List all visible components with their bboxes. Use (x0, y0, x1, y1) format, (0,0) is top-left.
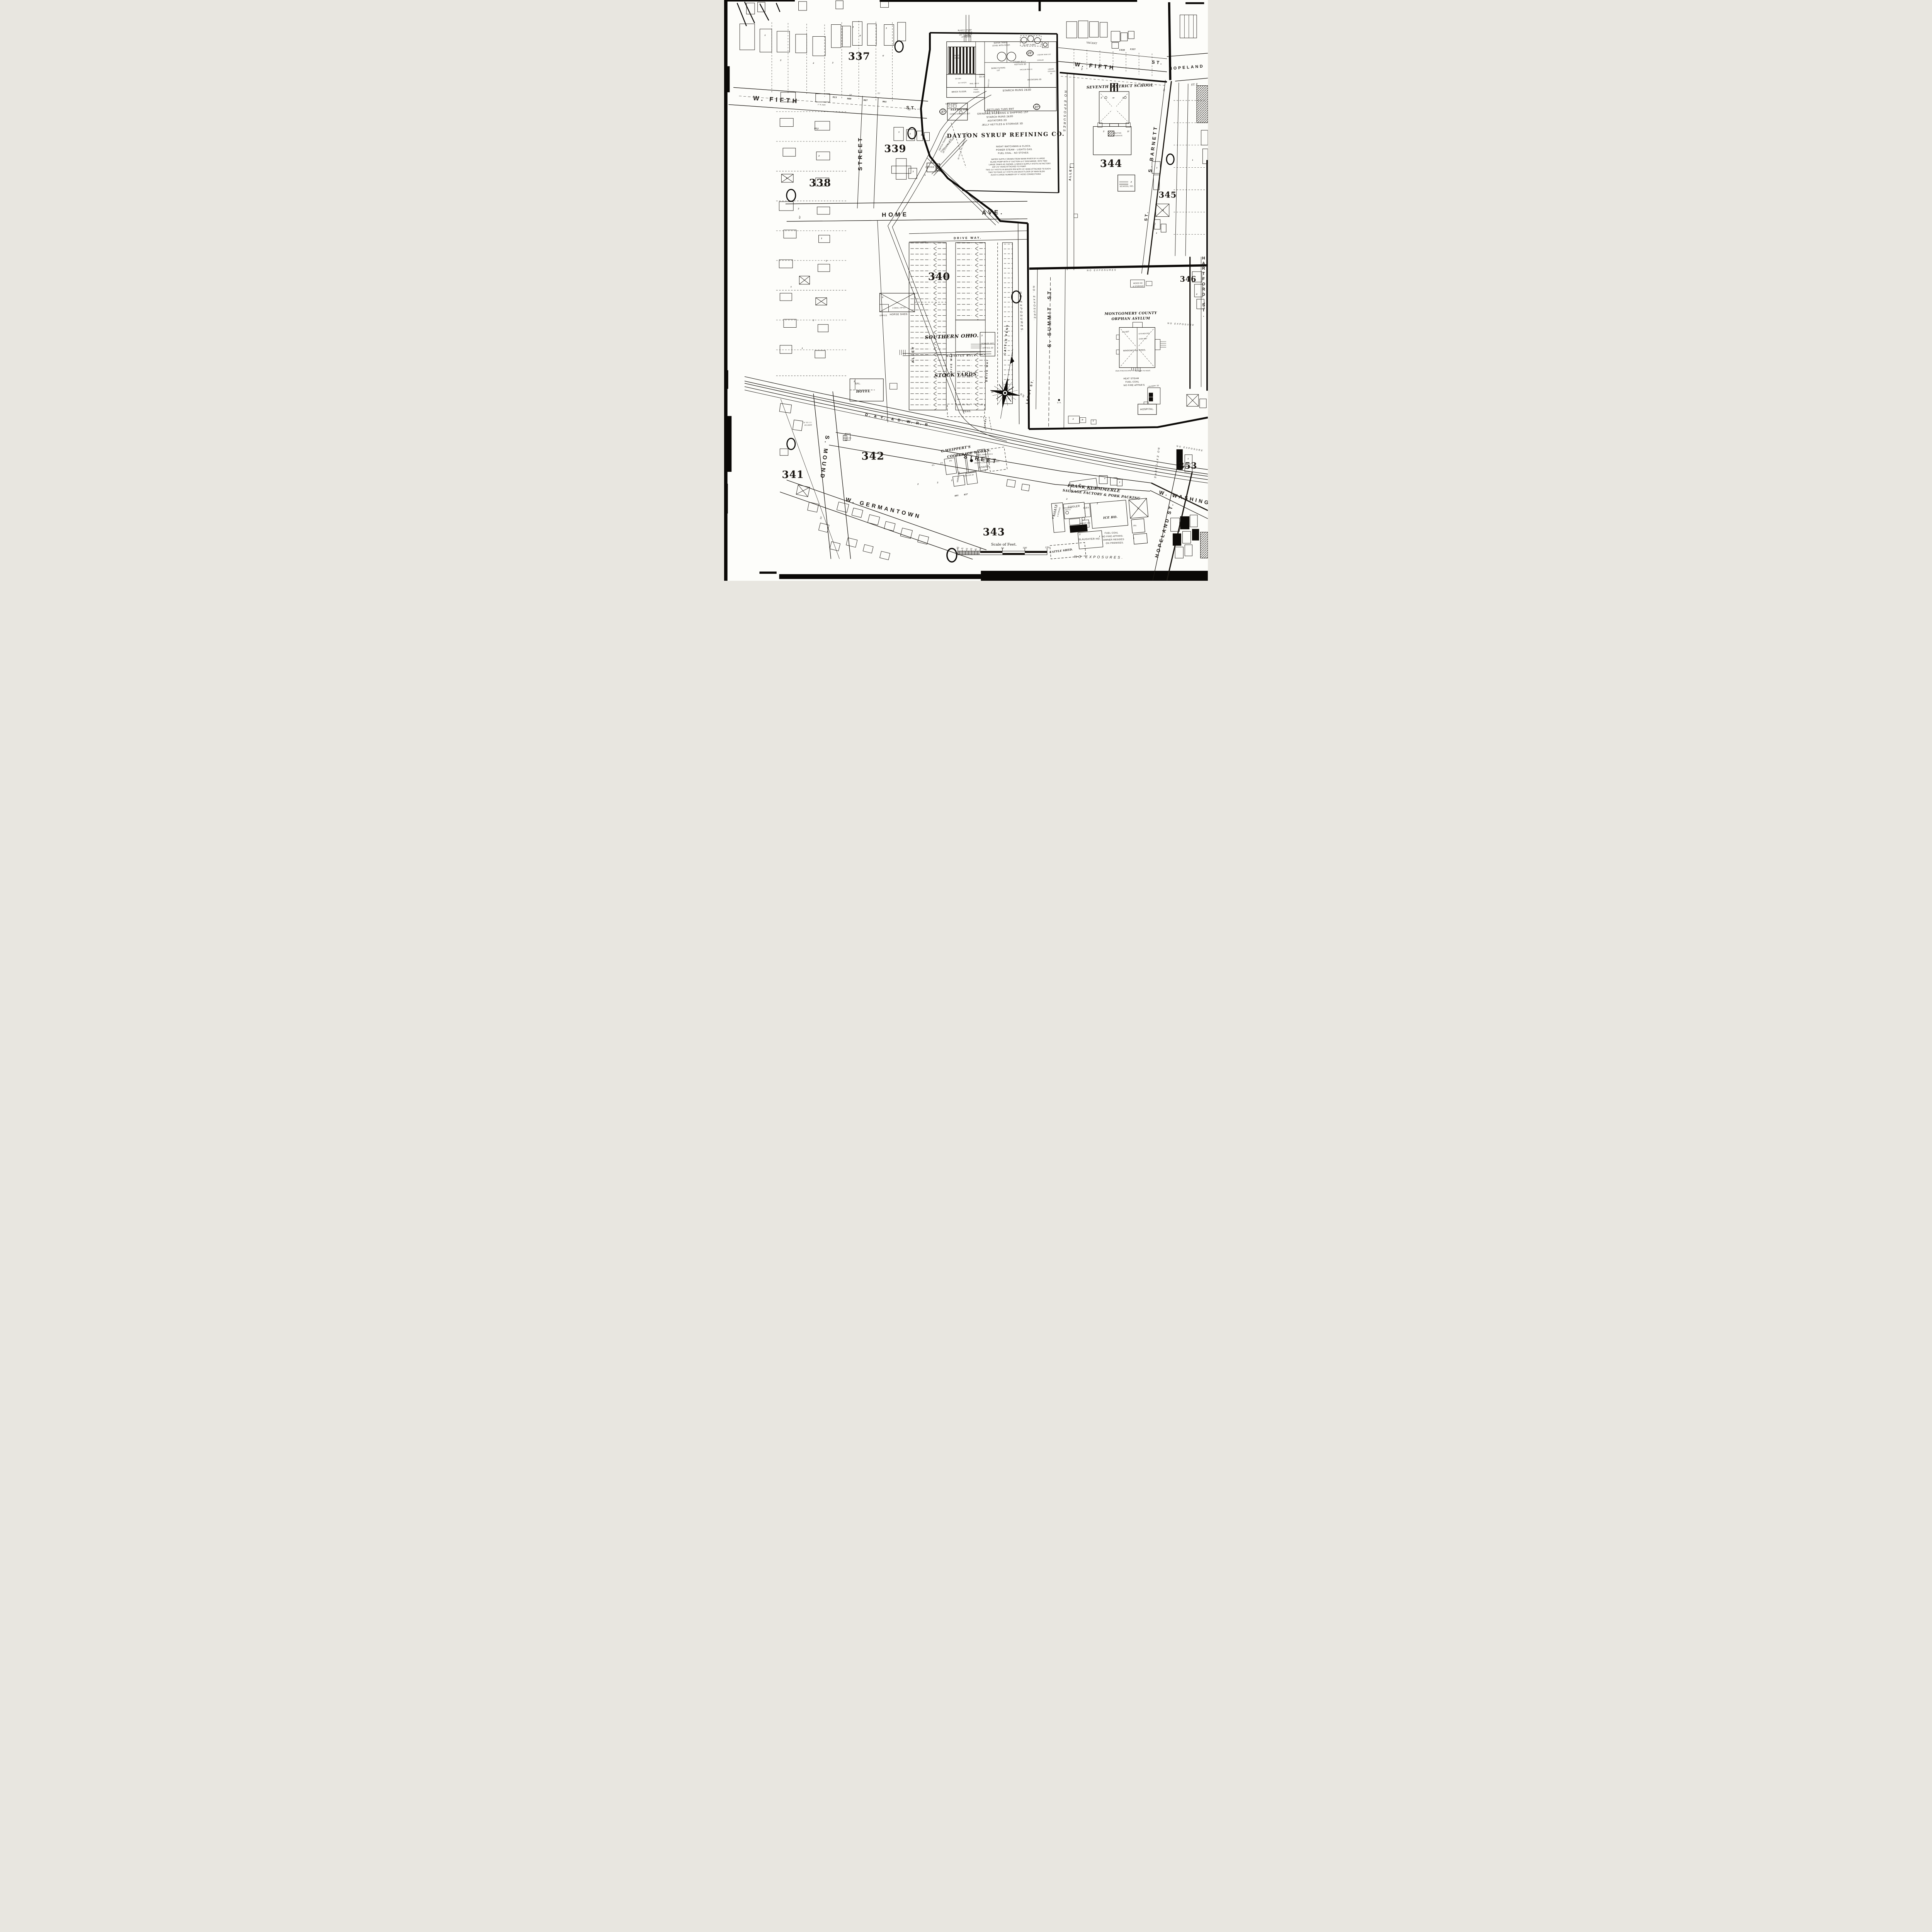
note-windows: WINDOWS ALL SIDES. (1123, 349, 1146, 352)
no-exposure-label: NO EXPOSURES (1063, 90, 1067, 133)
note-settling: JELLY KETTLES & STORAGE 3D (982, 123, 1023, 127)
scale-tick: 20 (970, 549, 973, 550)
building-floor-count: D. (1079, 484, 1082, 486)
building-floor-count: 2 (818, 155, 820, 157)
note-heating-furnace: FURNACE (1115, 135, 1122, 136)
note-pen: PEN. (967, 375, 974, 378)
building-floor-count: 3D (1112, 97, 1114, 99)
block-number-345: 345 (1159, 191, 1177, 199)
building-floor-count: 2 (1189, 464, 1190, 466)
note-jelly-kettles: KETTLES 3D (1014, 64, 1026, 66)
building-floor-count: 1 (910, 133, 911, 135)
street-label-w-washington: W. WASHINGTON (1159, 490, 1208, 509)
building-floor-count: 1 (924, 175, 925, 177)
street-label-home: HOME (882, 212, 909, 218)
note-corn-bin: BIN 2D (979, 76, 985, 78)
block-number-338: 338 (809, 178, 831, 188)
scanned-map-page: W. FIFTHST.W. FIFTHST.HOPELANDSTREETHOME… (724, 0, 1208, 581)
street-label-hopeland-st: HOPELAND ST. (1154, 502, 1175, 558)
building-floor-count: 2 (1066, 498, 1067, 500)
note-liquor-coolers: 3D (1050, 73, 1052, 75)
no-exposure-label: NO EXPOSURE (1176, 445, 1204, 452)
no-exposure-label: NO EXPOSURE (1167, 322, 1195, 327)
note-asylum-heat: HEAT STEAM (1123, 378, 1139, 380)
note-elevator: ELEV. (1083, 507, 1090, 509)
note-kuemmerle-fuel: FUEL COAL (1105, 532, 1119, 534)
house-number: 912 (814, 128, 818, 130)
dimension-label: 40' (1163, 88, 1166, 92)
dimension-label: 135' (922, 241, 927, 244)
block-number-343: 343 (983, 527, 1005, 537)
note-hydrant: D.H. (1057, 402, 1061, 404)
note-sausage-factory: & STORAGE (1057, 507, 1061, 517)
building-floor-count: S' (859, 36, 861, 37)
building-floor-count: 2 (937, 482, 939, 484)
building-floor-count: 2 (1131, 181, 1132, 183)
scale-tick: 150 (1045, 547, 1049, 549)
building-floor-count: 2 (1137, 508, 1138, 510)
building-floor-count: 1 (886, 28, 887, 30)
scale-tick: 50 (1001, 548, 1004, 550)
house-number: 841 (955, 495, 959, 497)
building-floor-count: 1 (1099, 536, 1100, 538)
block-number-344: 344 (1100, 159, 1122, 169)
note-staves-height: 6' (985, 469, 987, 472)
scale-tick: 30 (966, 549, 968, 550)
note-laundry: LAUNDRY 2D (1148, 385, 1159, 388)
block-number-339: 339 (884, 144, 906, 154)
note-mills: MILLS 1ST (988, 79, 990, 87)
elevated-walk-label: ELEVATED WALK (947, 355, 976, 357)
building-floor-count: 1 (802, 348, 803, 350)
script-label: ST. E (1191, 83, 1198, 87)
poi-orphan-asylum: MONTGOMERY COUNTY (1105, 311, 1157, 316)
scale-tick: 50 (956, 548, 959, 549)
dimension-label: 16' (908, 109, 911, 111)
note-asylum-fuel: FUEL COAL (1126, 381, 1139, 383)
note-scales-office: OFFICE 2D (983, 347, 993, 349)
note-office: OFFICE (925, 166, 935, 168)
building-floor-count: 2 (1163, 210, 1164, 212)
building-floor-count: 2 (813, 63, 814, 65)
building-floor-count: 2 (780, 60, 781, 62)
dimension-label: 51' (878, 93, 881, 95)
note-fire-escape: IRON FIRE ESCAPE TO 3D (1116, 370, 1137, 372)
street-label-street-vertical: STREET (857, 136, 863, 171)
note-elevator-bldg: ELEVATOR. (951, 108, 969, 111)
note-blake-pump: ATTACHED (961, 37, 971, 39)
building-floor-count: 2/ (1127, 131, 1129, 133)
dimension-label: 66' (1023, 394, 1026, 398)
compass-letter-n: N (1007, 379, 1009, 381)
dimension-label: 33' (1154, 222, 1157, 226)
sheet-ref-37: 37 (939, 109, 946, 114)
note-settling: SETTLING TUBS BMT (987, 108, 1015, 112)
note-wood-house: WOOD HO (1133, 283, 1143, 285)
compass-letter-e: E (1020, 393, 1022, 396)
building-floor-count: 2 (1073, 419, 1074, 420)
street-label-s-barnett: S. BARNETT (1148, 125, 1158, 173)
building-floor-count: 1 (1104, 478, 1105, 480)
building-floor-count: 2 (1079, 534, 1080, 536)
building-floor-count: 1½ (932, 465, 935, 467)
building-floor-count: 1 (1187, 459, 1189, 460)
dimension-label: 35' (1142, 265, 1146, 268)
note-flag-house: FLAG HO. (844, 437, 852, 439)
water-pipe-label: 3" W. PIPE (818, 104, 826, 106)
building-floor-count: 1 (1192, 160, 1193, 162)
building-floor-count: 2 (813, 320, 814, 322)
street-label-hopeland: HOPELAND (1169, 65, 1204, 71)
compass-letter-w: W (991, 391, 994, 394)
street-label-s-barnett-st: ST. (1144, 210, 1150, 221)
block-number-341: 341 (782, 470, 804, 480)
note-kitchen: KITCHEN BST (1139, 333, 1150, 335)
block-number-346: 346 (1180, 276, 1197, 283)
note-pen: PEN (968, 334, 973, 337)
scale-bar-title: Scale of Feet. (991, 543, 1017, 547)
note-settling: AGITATORS 2D (988, 119, 1007, 122)
poi-orphan-asylum: ORPHAN ASYLUM (1112, 317, 1150, 321)
building-floor-count: 2 (1196, 294, 1197, 296)
note-bone-filters: 1ST (997, 70, 1000, 72)
building-floor-count: 1 (764, 35, 765, 37)
cattle-pens-label: CATTLE PENS (1003, 324, 1009, 355)
note-feed-pumps: PUMPS (973, 91, 979, 93)
poi-seventh-district-school: SEVENTH DISTRICT SCHOOL (1087, 84, 1154, 90)
note-watchman: NIGHT WATCHMAN & CLOCK. (996, 145, 1031, 148)
building-floor-count: 2 (1101, 97, 1102, 99)
note-heating-furnace: HEATING (1114, 133, 1122, 134)
note-kuemmerle-fuel: NO FIRE APPARS: (1102, 535, 1124, 538)
note-openings: 8 SMALL OP'GS (893, 307, 906, 310)
scale-tick: 40 (961, 548, 964, 550)
building-floor-count: 1 (921, 134, 922, 136)
house-number: 907 (863, 100, 867, 102)
building-floor-count: 1 (1156, 233, 1157, 235)
no-exposure-label: NO EXPOSURE. (1153, 447, 1160, 481)
block-number-337: 337 (848, 51, 870, 61)
house-number: 1339 (1119, 49, 1125, 52)
building-floor-count: D (1082, 420, 1083, 421)
building-floor-count: 2 (951, 480, 952, 482)
note-feed-pumps: FEED (974, 89, 978, 91)
note-wood-house: & STORAGE (1133, 286, 1144, 288)
note-kuemmerle-fuel: OWNER RESIDES (1103, 538, 1124, 541)
building-floor-count: 1 (786, 178, 787, 180)
block-number-340: 340 (928, 272, 950, 282)
dimension-label: 30' TO 1 S. (803, 422, 812, 424)
building-floor-count: 1 (821, 238, 822, 240)
building-floor-count: 1½ (940, 463, 943, 464)
note-scales: SCALES (936, 163, 938, 171)
note-brick-floor: BRICK (954, 55, 960, 57)
note-agitators: AGITATORS 2D (1027, 79, 1041, 81)
note-brick-floor: FLOOR (954, 58, 961, 60)
note-scales-office: SCALES 1ST (981, 343, 994, 345)
building-floor-count: 1 (1093, 421, 1094, 422)
street-label-w-germantown: W. GERMANTOWN (845, 497, 922, 520)
no-exposure-label: NO EXPOSURES (1087, 269, 1117, 272)
note-staves: STAVES. (979, 465, 990, 469)
note-engine-equip: ENG. EQUIP. (946, 103, 958, 105)
note-liquor-coolers: COOLERS (1048, 71, 1056, 73)
note-water-supply: ALSO A LARGE NUMBER OF ¾" HOSE CONNECTIO… (991, 173, 1041, 176)
note-ice-house: ICE HO. (1103, 515, 1118, 519)
building-floor-count: 1 (898, 131, 900, 133)
note-horse-shed: HORSE SHED. (890, 313, 908, 316)
note-liquor-tank: LIQUOR TANK 1ST (1037, 54, 1051, 56)
building-floor-count: 2 (981, 335, 983, 337)
street-label-alley-west: ALLEY (912, 345, 915, 363)
note-office-stockyard: OFFICE (879, 315, 887, 317)
note-settling: GRINDING, FILTERING & SHIPPING 1ST (977, 111, 1029, 116)
note-ladder: LADDER TO ROOF. (1136, 370, 1151, 372)
note-watchman: POWER STEAM - LIGHTS GAS. (996, 148, 1033, 151)
building-floor-count: 2 (882, 297, 883, 299)
house-number: 915 (832, 97, 837, 99)
note-settling: STARCH RUNS 2&3D (986, 116, 1013, 119)
sheet-ref-37: 37 (1033, 104, 1040, 109)
no-exposure-label: NO. EXPOSURE. (1032, 286, 1036, 321)
street-label-alley-school: ALLEY (1069, 165, 1073, 181)
dimension-label: 50' (849, 94, 852, 96)
house-number: 909 (847, 98, 851, 100)
building-floor-count: 2 (1097, 503, 1098, 505)
note-water-supply: 100' 2½" HOSE ATTACHED TO PUMP. (992, 166, 1026, 168)
note-vacuum-pan: VACUUM PAN ST. (1020, 69, 1032, 71)
building-floor-count: 1 (1156, 167, 1157, 169)
house-number: 901 (882, 101, 886, 104)
note-chimney: CH 100' (955, 78, 961, 80)
note-oven: OVEN BST (1139, 338, 1147, 340)
scale-tick: 10 (975, 549, 977, 551)
note-hospital: HOSPITAL. (1140, 408, 1154, 412)
note-slop-tubs: SLOP TUBS. (1023, 44, 1036, 47)
building-floor-count: 1 (913, 171, 914, 173)
note-asylum-apparatus: NO FIRE APPAR'S (1124, 384, 1145, 387)
street-label-w-fifth: W. FIFTH (753, 95, 800, 105)
street-label-hartford: HARTFORD ST. (1201, 256, 1206, 319)
note-pens: PENS. (963, 410, 971, 413)
building-floor-count: 2 (917, 483, 918, 485)
driveway-label-east: DRIVE WAY (985, 359, 989, 382)
building-floor-count: 1 (852, 27, 854, 29)
building-floor-count: 1 (1119, 482, 1120, 484)
street-label-ave: AVE. (982, 210, 1005, 216)
runway-label: RUNWAY (984, 416, 987, 429)
note-saloon: SAL. (855, 383, 861, 385)
building-floor-count: 1½ (949, 460, 952, 462)
dimension-label: 60' (799, 216, 802, 219)
note-syrup-cooler: COOLER (1037, 60, 1044, 61)
water-pipe-label: 6" W. PIPE (1050, 292, 1052, 300)
dimension-label: FR SHED (804, 424, 812, 426)
building-floor-count: 2 (1122, 97, 1124, 99)
house-number: 1337 (1130, 49, 1136, 51)
no-exposure-label: NO EXPOSURES. (1019, 291, 1023, 333)
note-engine: ENG. 100 H. (970, 83, 980, 85)
dimension-label: 60' (1081, 67, 1084, 71)
railroad-label: D. & V., & D. W. R. R. (865, 413, 932, 428)
building-floor-count: 1 (1133, 538, 1134, 540)
street-label-s-mound: S. MOUND (819, 435, 830, 480)
map-labels-layer: W. FIFTHST.W. FIFTHST.HOPELANDSTREETHOME… (724, 0, 1208, 581)
building-floor-count: 2 (798, 208, 799, 210)
note-watchman: FUEL COAL - NO STOVES. (998, 152, 1029, 155)
street-label-st-east: ST. (1152, 60, 1164, 65)
note-school-house: SCHOOL HO. (1120, 185, 1134, 188)
building-floor-count: S' (883, 56, 884, 57)
no-exposure-label: NO EXPOSURES. (1074, 555, 1124, 560)
note-starch-runs: STARCH RUNS 2&3D (1003, 88, 1032, 92)
building-floor-count: 2 (1103, 131, 1104, 133)
building-floor-count: 2 (826, 260, 827, 262)
poi-hotel: HOTEL (856, 390, 870, 394)
building-floor-count: 1 (1204, 303, 1205, 304)
note-kuemmerle-fuel: ON PREMISES. (1106, 542, 1124, 544)
note-liquor-coolers: LIQUOR (1048, 68, 1054, 70)
note-machinery: HAND W'K 2D (963, 474, 974, 477)
building-floor-count: 2 (832, 62, 833, 64)
note-asylum-floors: 3 & BST (1122, 331, 1129, 333)
scale-tick: 100 (1023, 547, 1027, 549)
note-brick-floor: BRICK FLOOR. (952, 91, 967, 94)
note-vacant: VACANT (1086, 41, 1097, 45)
dimension-25: 25' (1026, 51, 1034, 56)
map-stage: W. FIFTHST.W. FIFTHST.HOPELANDSTREETHOME… (724, 0, 1208, 581)
note-slaughter-house: SLAUGHTER HO. (1078, 538, 1100, 541)
note-hydrants: 1½" HYD'S (958, 82, 966, 84)
driveway-label-top: DRIVE WAY. (954, 236, 982, 240)
note-corn-sheller: CORN SHELLER 1ST (950, 113, 970, 116)
note-smoke-house: SMOKE HO. (1079, 523, 1090, 526)
note-rendering-kettle: KETTLE (1065, 509, 1071, 511)
building-floor-count: 1½ (1133, 525, 1136, 527)
block-number-342: 342 (861, 451, 884, 461)
note-water-tanks: LEVEL WITH ROOF. (992, 44, 1010, 47)
building-floor-count: 2 (854, 381, 855, 383)
scale-tick: 0 (980, 548, 981, 550)
note-cattle-shed: CATTLE SHED. (1049, 548, 1073, 553)
block-number-353: 353 (1178, 462, 1197, 470)
dimension-label: 50' (820, 516, 823, 520)
house-number: 837 (964, 494, 968, 496)
street-label-leroy: LEROY ST. (1026, 379, 1034, 404)
building-floor-count: 1 (791, 286, 792, 288)
